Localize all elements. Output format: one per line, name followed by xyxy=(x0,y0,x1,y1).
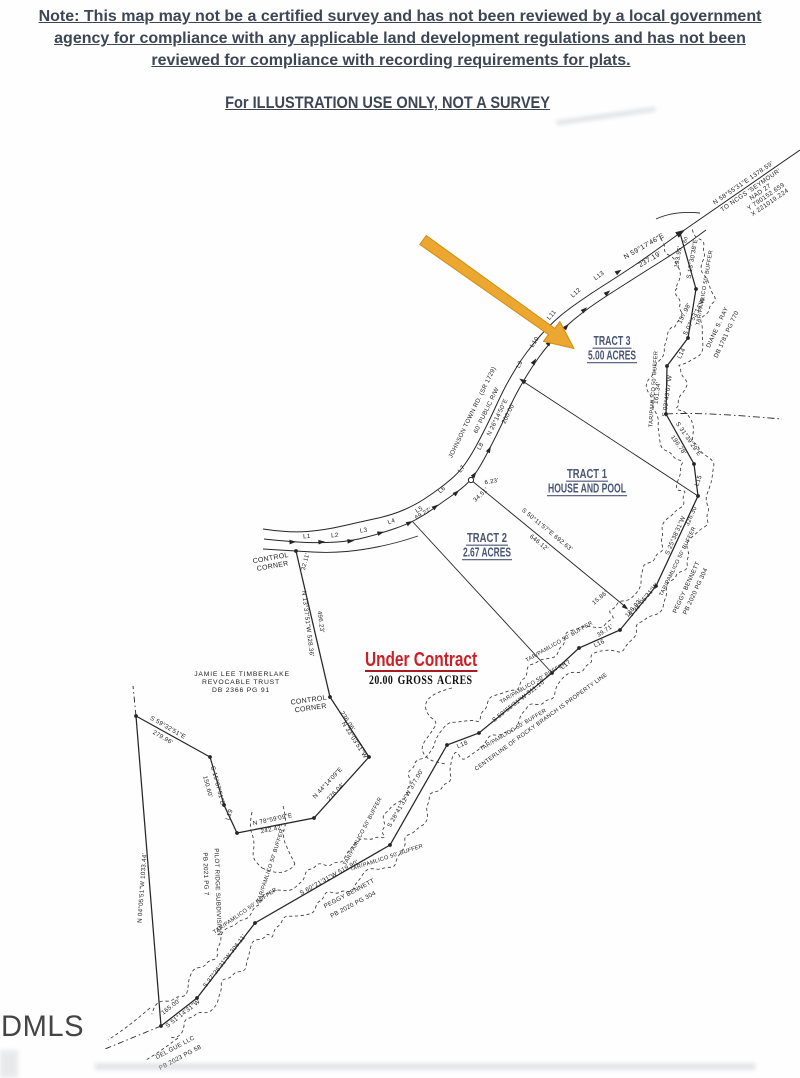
svg-text:L3: L3 xyxy=(359,526,368,534)
svg-text:TAR/PAMLICO 50' BUFFER: TAR/PAMLICO 50' BUFFER xyxy=(343,796,384,866)
svg-text:496.23': 496.23' xyxy=(316,610,326,633)
svg-text:HOUSE AND POOL: HOUSE AND POOL xyxy=(548,482,626,496)
svg-text:L9: L9 xyxy=(515,359,525,369)
svg-text:6.23': 6.23' xyxy=(484,478,499,486)
svg-text:N 04°05'51"W 1033.44': N 04°05'51"W 1033.44' xyxy=(137,853,149,923)
svg-text:326.30': 326.30' xyxy=(684,504,699,527)
svg-text:JAMIE LEE TIMBERLAKE: JAMIE LEE TIMBERLAKE xyxy=(194,671,290,678)
svg-text:L6: L6 xyxy=(437,485,447,495)
svg-text:TRACT 2: TRACT 2 xyxy=(467,531,507,545)
svg-text:JOHNSON TOWN RD. (SR 1729): JOHNSON TOWN RD. (SR 1729) xyxy=(447,366,497,460)
svg-text:L8: L8 xyxy=(476,441,486,451)
svg-text:S 28°41'31"W 377.00': S 28°41'31"W 377.00' xyxy=(386,768,425,829)
svg-text:32.11': 32.11' xyxy=(301,553,311,571)
svg-text:237.19': 237.19' xyxy=(638,251,663,269)
svg-text:S 38°05'31"W: S 38°05'31"W xyxy=(628,582,660,619)
svg-text:PILOT RIDGE SUBDIVISION: PILOT RIDGE SUBDIVISION xyxy=(212,848,222,936)
svg-text:193.95': 193.95' xyxy=(673,245,684,268)
svg-text:L14: L14 xyxy=(676,347,687,360)
svg-text:L1: L1 xyxy=(303,533,311,541)
svg-text:15.86': 15.86' xyxy=(592,590,610,606)
svg-text:S 03°43'07"W: S 03°43'07"W xyxy=(661,375,674,417)
svg-text:TRACT 3: TRACT 3 xyxy=(594,334,631,348)
svg-text:L2: L2 xyxy=(331,532,339,540)
svg-text:L4: L4 xyxy=(387,517,397,526)
svg-text:TAR/PAMLICO 50' BUFFER: TAR/PAMLICO 50' BUFFER xyxy=(695,250,714,326)
svg-text:150.60': 150.60' xyxy=(201,775,214,798)
svg-text:L16: L16 xyxy=(593,638,606,649)
svg-text:5.00 ACRES: 5.00 ACRES xyxy=(588,349,636,363)
svg-text:DB 2366 PG 91: DB 2366 PG 91 xyxy=(212,687,270,694)
svg-text:TAR/PAMLICO 50' BUFFER: TAR/PAMLICO 50' BUFFER xyxy=(349,843,424,872)
svg-text:L12: L12 xyxy=(569,286,582,299)
svg-text:34.51': 34.51' xyxy=(473,487,490,503)
svg-text:PB 2021 PG 7: PB 2021 PG 7 xyxy=(201,852,210,896)
svg-text:2.67 ACRES: 2.67 ACRES xyxy=(463,546,511,560)
svg-text:TRACT 1: TRACT 1 xyxy=(567,467,607,481)
svg-text:REVOCABLE TRUST: REVOCABLE TRUST xyxy=(202,679,280,686)
svg-text:L13: L13 xyxy=(593,270,606,282)
svg-text:TAR/PAMLICO 50' BUFFER: TAR/PAMLICO 50' BUFFER xyxy=(525,621,594,664)
